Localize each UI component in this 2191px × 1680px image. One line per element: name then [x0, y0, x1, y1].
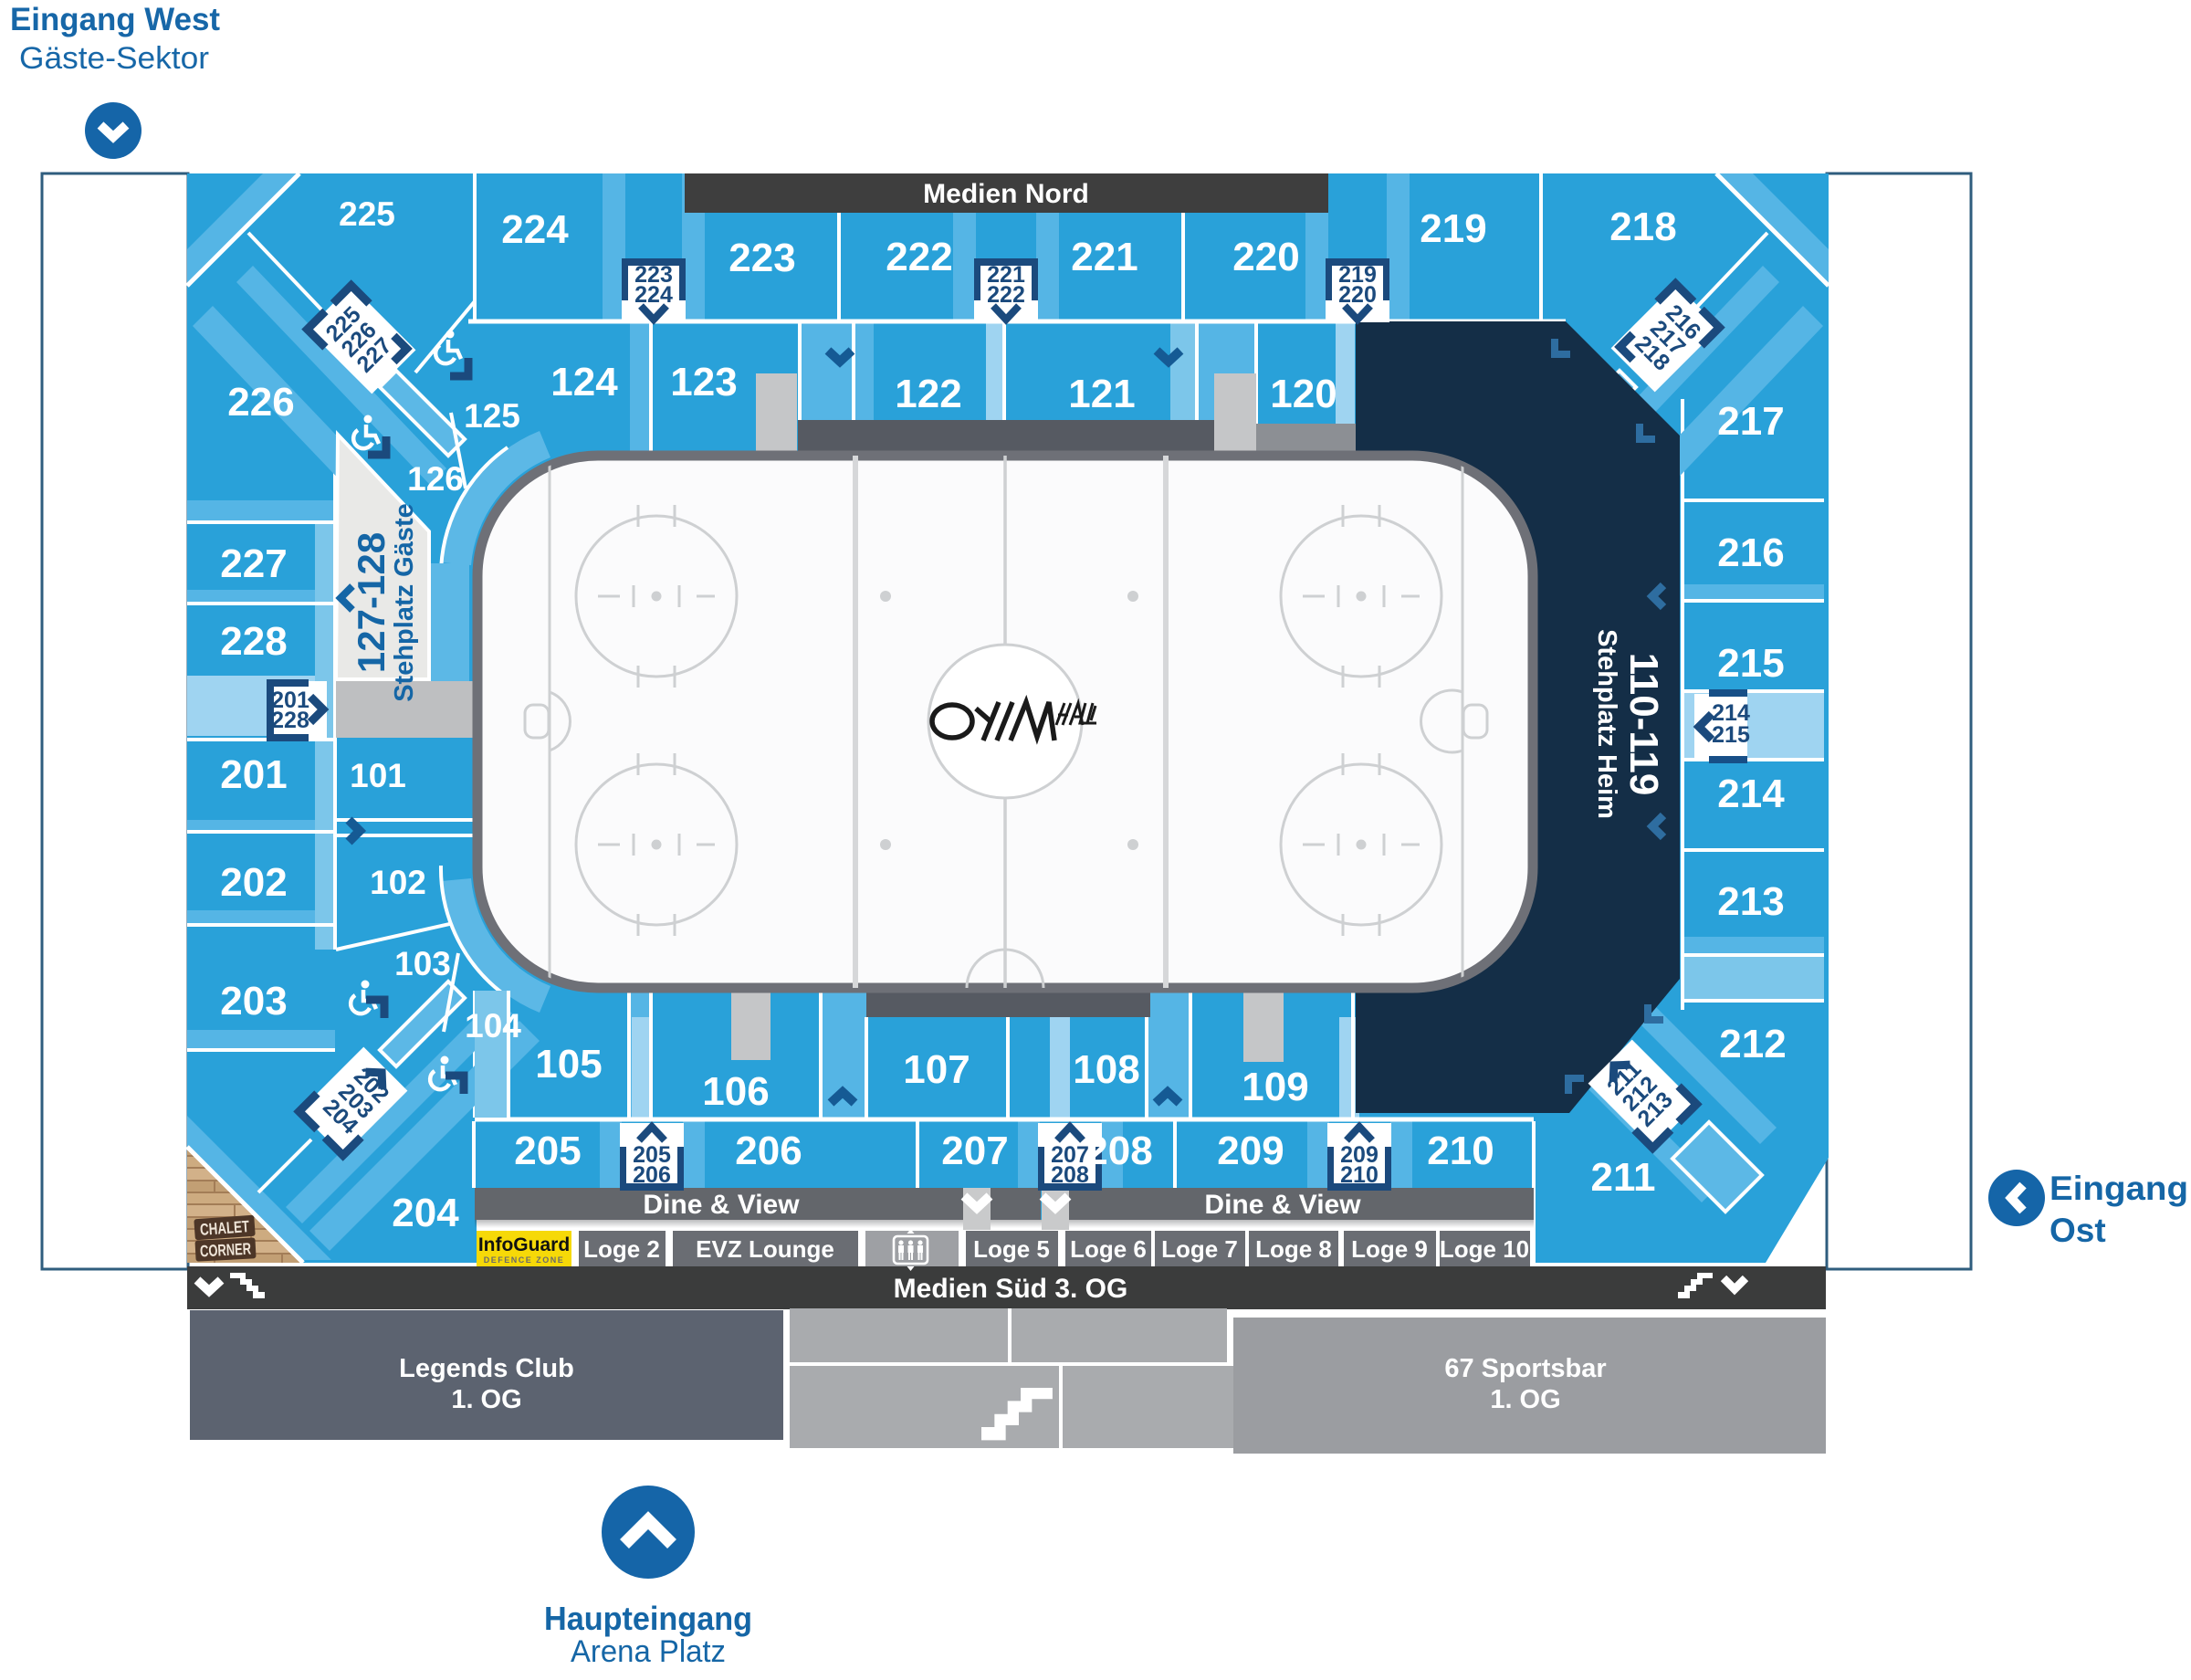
svg-text:Haupteingang: Haupteingang: [544, 1600, 752, 1637]
svg-text:201: 201: [220, 752, 287, 797]
svg-text:109: 109: [1242, 1065, 1308, 1109]
svg-text:Dine & View: Dine & View: [643, 1190, 800, 1220]
svg-text:Stehplatz Heim: Stehplatz Heim: [1592, 629, 1621, 819]
svg-text:105: 105: [535, 1042, 602, 1087]
svg-text:101: 101: [350, 757, 406, 794]
svg-text:125: 125: [464, 397, 520, 435]
svg-text:208: 208: [1051, 1162, 1089, 1188]
svg-text:120: 120: [1270, 372, 1337, 416]
svg-text:Arena Platz: Arena Platz: [571, 1634, 726, 1669]
svg-text:214: 214: [1717, 772, 1785, 816]
svg-text:Eingang: Eingang: [2049, 1170, 2188, 1207]
svg-text:224: 224: [501, 207, 569, 252]
svg-text:Loge 9: Loge 9: [1351, 1235, 1428, 1263]
svg-text:212: 212: [1719, 1022, 1786, 1066]
svg-text:1. OG: 1. OG: [451, 1385, 521, 1414]
svg-text:210: 210: [1340, 1162, 1379, 1188]
svg-text:CORNER: CORNER: [200, 1240, 252, 1261]
svg-text:203: 203: [220, 979, 287, 1024]
svg-text:208: 208: [1085, 1129, 1152, 1173]
svg-text:121: 121: [1068, 372, 1135, 416]
svg-text:126: 126: [407, 460, 464, 498]
svg-text:220: 220: [1232, 235, 1299, 279]
svg-text:Gäste-Sektor: Gäste-Sektor: [19, 41, 209, 76]
svg-text:204: 204: [392, 1191, 459, 1235]
svg-text:122: 122: [895, 372, 961, 416]
svg-text:127-128: 127-128: [350, 532, 393, 673]
svg-text:103: 103: [394, 945, 451, 982]
svg-text:225: 225: [339, 195, 395, 233]
svg-text:Loge 10: Loge 10: [1440, 1235, 1529, 1263]
svg-text:Dine & View: Dine & View: [1204, 1190, 1361, 1220]
svg-text:Ost: Ost: [2049, 1212, 2106, 1249]
svg-text:InfoGuard: InfoGuard: [478, 1234, 570, 1255]
svg-text:104: 104: [465, 1007, 521, 1045]
svg-text:DEFENCE ZONE: DEFENCE ZONE: [484, 1255, 565, 1265]
svg-text:206: 206: [735, 1129, 802, 1173]
svg-text:110-119: 110-119: [1621, 653, 1666, 796]
svg-text:Legends Club: Legends Club: [399, 1354, 574, 1383]
svg-text:124: 124: [550, 360, 618, 404]
svg-text:EVZ Lounge: EVZ Lounge: [696, 1235, 834, 1263]
svg-text:223: 223: [729, 236, 795, 280]
svg-text:1. OG: 1. OG: [1490, 1385, 1560, 1414]
svg-text:CHALET: CHALET: [199, 1217, 249, 1239]
svg-text:Eingang West: Eingang West: [10, 2, 220, 37]
svg-text:Stehplatz Gäste: Stehplatz Gäste: [390, 503, 419, 702]
svg-text:106: 106: [702, 1069, 769, 1114]
svg-text:Loge 8: Loge 8: [1255, 1235, 1332, 1263]
svg-text:228: 228: [220, 619, 287, 664]
svg-text:Medien Nord: Medien Nord: [923, 179, 1089, 209]
svg-text:222: 222: [886, 235, 952, 279]
svg-text:222: 222: [987, 282, 1025, 308]
svg-text:123: 123: [670, 360, 737, 404]
svg-text:Loge 5: Loge 5: [973, 1235, 1050, 1263]
svg-text:213: 213: [1717, 879, 1784, 924]
svg-text:108: 108: [1073, 1047, 1139, 1092]
svg-text:215: 215: [1712, 722, 1750, 748]
svg-text:210: 210: [1427, 1129, 1494, 1173]
svg-text:216: 216: [1717, 530, 1784, 575]
svg-text:Loge 6: Loge 6: [1070, 1235, 1147, 1263]
svg-text:221: 221: [1071, 235, 1137, 279]
svg-text:Medien Süd 3. OG: Medien Süd 3. OG: [894, 1274, 1128, 1304]
svg-text:67 Sportsbar: 67 Sportsbar: [1444, 1354, 1606, 1383]
svg-text:224: 224: [634, 282, 673, 308]
svg-text:211: 211: [1591, 1155, 1656, 1200]
svg-text:215: 215: [1717, 641, 1784, 686]
svg-text:205: 205: [514, 1129, 581, 1173]
svg-text:206: 206: [633, 1162, 671, 1188]
svg-text:202: 202: [220, 860, 287, 905]
svg-text:227: 227: [220, 541, 287, 586]
svg-text:217: 217: [1717, 399, 1784, 444]
svg-text:218: 218: [1609, 205, 1676, 249]
svg-text:209: 209: [1217, 1129, 1284, 1173]
svg-text:102: 102: [370, 864, 426, 901]
svg-text:207: 207: [941, 1129, 1008, 1173]
svg-text:Loge 2: Loge 2: [583, 1235, 660, 1263]
svg-text:107: 107: [903, 1047, 970, 1092]
svg-text:228: 228: [271, 708, 309, 733]
svg-text:226: 226: [227, 380, 294, 425]
svg-text:219: 219: [1420, 206, 1486, 251]
svg-text:Loge 7: Loge 7: [1161, 1235, 1238, 1263]
svg-text:220: 220: [1338, 282, 1377, 308]
